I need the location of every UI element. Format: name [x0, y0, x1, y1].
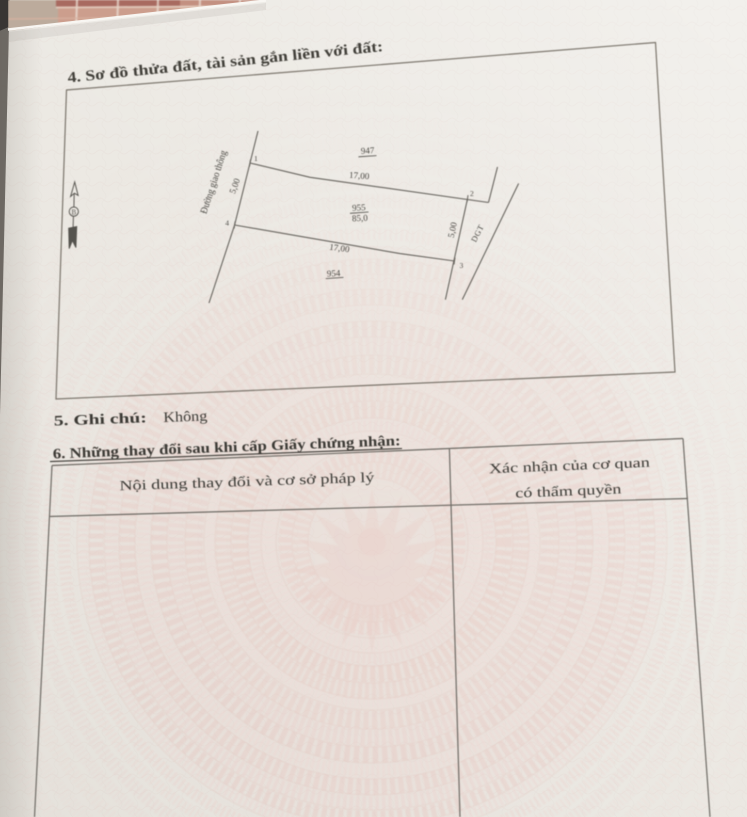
- svg-text:954: 954: [327, 268, 342, 279]
- svg-text:1: 1: [254, 154, 258, 163]
- svg-text:2: 2: [470, 189, 474, 198]
- svg-text:B: B: [71, 208, 76, 216]
- svg-text:947: 947: [361, 145, 376, 156]
- svg-text:5. Ghi chú:: 5. Ghi chú:: [54, 410, 148, 429]
- svg-text:85,0: 85,0: [352, 213, 369, 224]
- svg-text:3: 3: [460, 261, 464, 270]
- svg-text:17,00: 17,00: [349, 170, 370, 181]
- svg-text:4: 4: [225, 219, 229, 228]
- svg-text:955: 955: [352, 202, 367, 213]
- svg-text:Không: Không: [163, 408, 208, 426]
